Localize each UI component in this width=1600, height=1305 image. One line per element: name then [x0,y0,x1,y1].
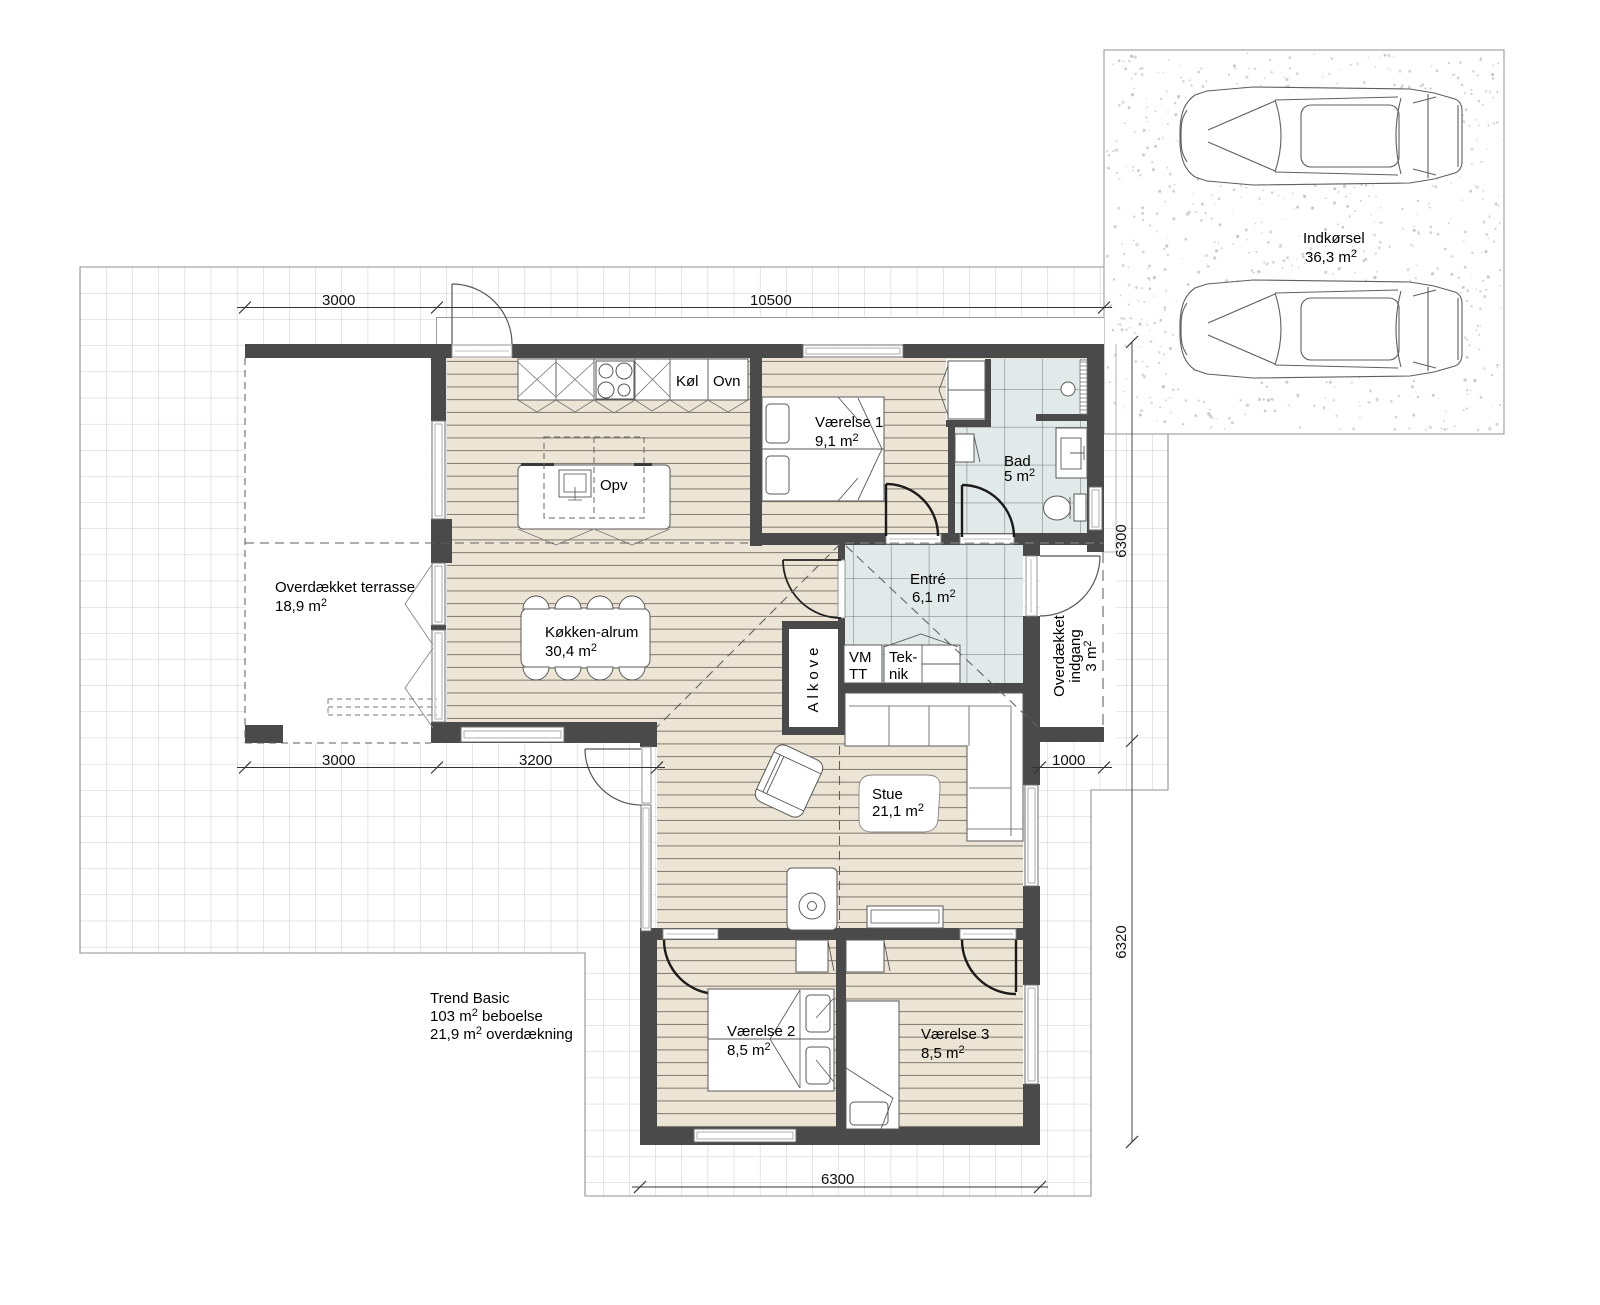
svg-text:Ovn: Ovn [713,373,741,390]
svg-text:Køkken-alrum: Køkken-alrum [545,624,638,641]
svg-text:6320: 6320 [1113,925,1130,958]
svg-text:VM: VM [849,649,872,666]
svg-text:nik: nik [889,666,909,683]
svg-text:6300: 6300 [1113,524,1130,557]
svg-text:Entré: Entré [910,571,946,588]
svg-text:3200: 3200 [519,752,552,769]
svg-text:8,5 m2: 8,5 m2 [727,1041,771,1059]
svg-text:Værelse 1: Værelse 1 [815,414,883,431]
svg-text:21,9 m2 overdækning: 21,9 m2 overdækning [430,1025,573,1043]
svg-text:103 m2 beboelse: 103 m2 beboelse [430,1007,543,1025]
svg-text:9,1 m2: 9,1 m2 [815,432,859,450]
svg-text:21,1 m2: 21,1 m2 [872,802,924,820]
svg-text:Køl: Køl [676,373,699,390]
svg-text:3000: 3000 [322,292,355,309]
svg-text:Stue: Stue [872,786,903,803]
svg-text:10500: 10500 [750,292,792,309]
svg-text:Indkørsel: Indkørsel [1303,230,1365,247]
svg-text:Værelse 3: Værelse 3 [921,1026,989,1043]
svg-text:3000: 3000 [322,752,355,769]
svg-text:Overdækket: Overdækket [1051,614,1068,697]
svg-text:1000: 1000 [1052,752,1085,769]
svg-text:18,9 m2: 18,9 m2 [275,597,327,615]
svg-text:Trend Basic: Trend Basic [430,990,510,1007]
svg-text:Tek-: Tek- [889,649,917,666]
svg-text:Overdækket terrasse: Overdækket terrasse [275,579,415,596]
svg-text:6,1 m2: 6,1 m2 [912,588,956,606]
svg-text:Opv: Opv [600,477,628,494]
svg-text:6300: 6300 [821,1171,854,1188]
svg-text:TT: TT [849,666,867,683]
svg-text:8,5 m2: 8,5 m2 [921,1044,965,1062]
svg-text:30,4 m2: 30,4 m2 [545,642,597,660]
svg-text:indgang: indgang [1067,629,1084,682]
svg-text:36,3 m2: 36,3 m2 [1305,248,1357,266]
svg-text:Alkove: Alkove [805,643,822,712]
svg-text:Værelse 2: Værelse 2 [727,1023,795,1040]
